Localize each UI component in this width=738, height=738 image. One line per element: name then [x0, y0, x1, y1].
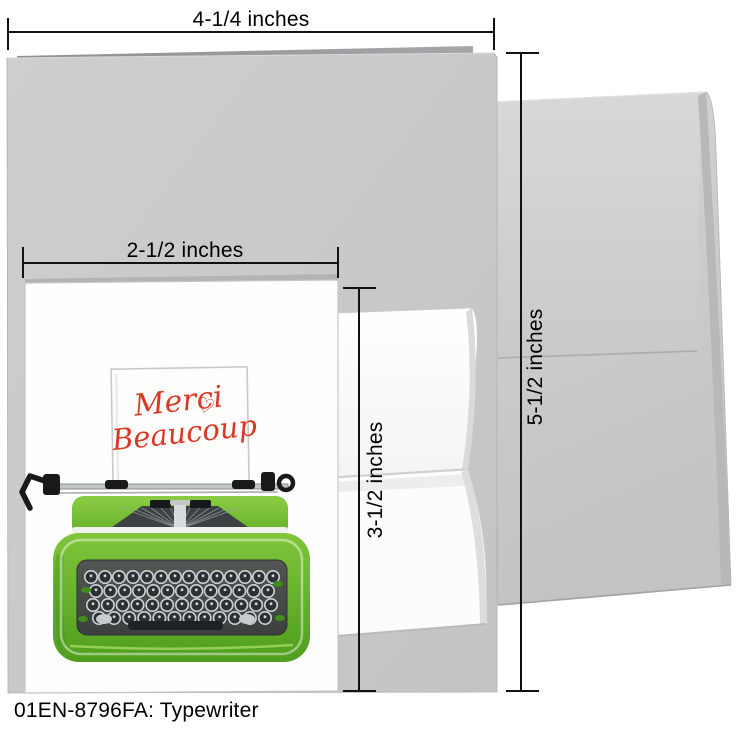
dim-tick: [337, 247, 339, 278]
dim-tick: [7, 18, 9, 50]
dim-line-card-height: [520, 53, 522, 692]
dim-label-card-width: 4-1/4 inches: [151, 8, 351, 32]
dim-tick: [506, 52, 539, 54]
space-bar: [128, 621, 223, 630]
product-caption: 01EN-8796FA: Typewriter: [14, 699, 259, 723]
greeting-text: Merci Beaucoup: [107, 379, 253, 456]
dim-tick: [22, 247, 24, 278]
dim-tick: [506, 690, 539, 692]
dim-tick: [343, 690, 376, 692]
scene-artwork: [0, 0, 738, 738]
dim-tick: [343, 287, 376, 289]
dim-line-design-height: [358, 288, 360, 692]
dim-label-design-width: 2-1/2 inches: [85, 239, 285, 263]
keyboard: [77, 560, 287, 635]
dim-label-design-height: 3-1/2 inches: [364, 380, 388, 580]
dim-label-card-height: 5-1/2 inches: [524, 267, 548, 467]
dim-tick: [493, 18, 495, 50]
product-mockup: Merci Beaucoup ♡ 4-1/4 inches 2-1/2 inch…: [0, 0, 738, 738]
